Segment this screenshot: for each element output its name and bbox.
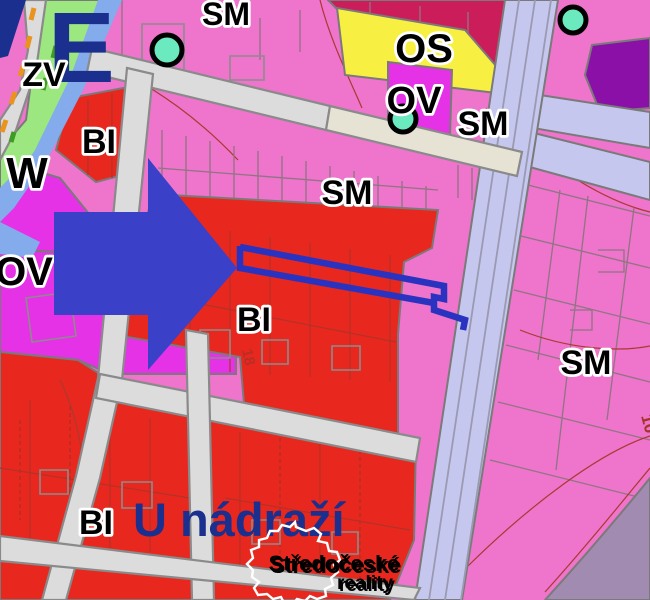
zoning-map[interactable]: E SM OS OV SM SM SM ZV W OV BI BI BI 18 … bbox=[0, 0, 650, 600]
zone-label-bi-upper: BI bbox=[82, 123, 116, 161]
zone-label-sm-mid: SM bbox=[322, 174, 373, 212]
zone-label-bi-central: BI bbox=[237, 301, 271, 339]
svg-text:reality: reality bbox=[337, 573, 393, 594]
zone-label-w: W bbox=[6, 149, 48, 198]
zone-dark-purple bbox=[585, 38, 650, 112]
street-label: U nádraží bbox=[133, 493, 346, 546]
zone-label-ov-west: OV bbox=[0, 250, 53, 294]
poi-marker bbox=[560, 7, 586, 33]
zone-label-sm-east: SM bbox=[561, 344, 612, 382]
zone-label-sm-near-ov: SM bbox=[458, 105, 509, 143]
zone-label-ov-top: OV bbox=[387, 80, 443, 122]
zone-label-sm-top: SM bbox=[202, 0, 250, 32]
parcel-number-center: 18 bbox=[238, 347, 258, 367]
poi-marker bbox=[152, 35, 182, 65]
zone-label-zv: ZV bbox=[22, 56, 66, 94]
zone-label-bi-south: BI bbox=[79, 504, 113, 542]
zone-label-os: OS bbox=[395, 27, 453, 71]
